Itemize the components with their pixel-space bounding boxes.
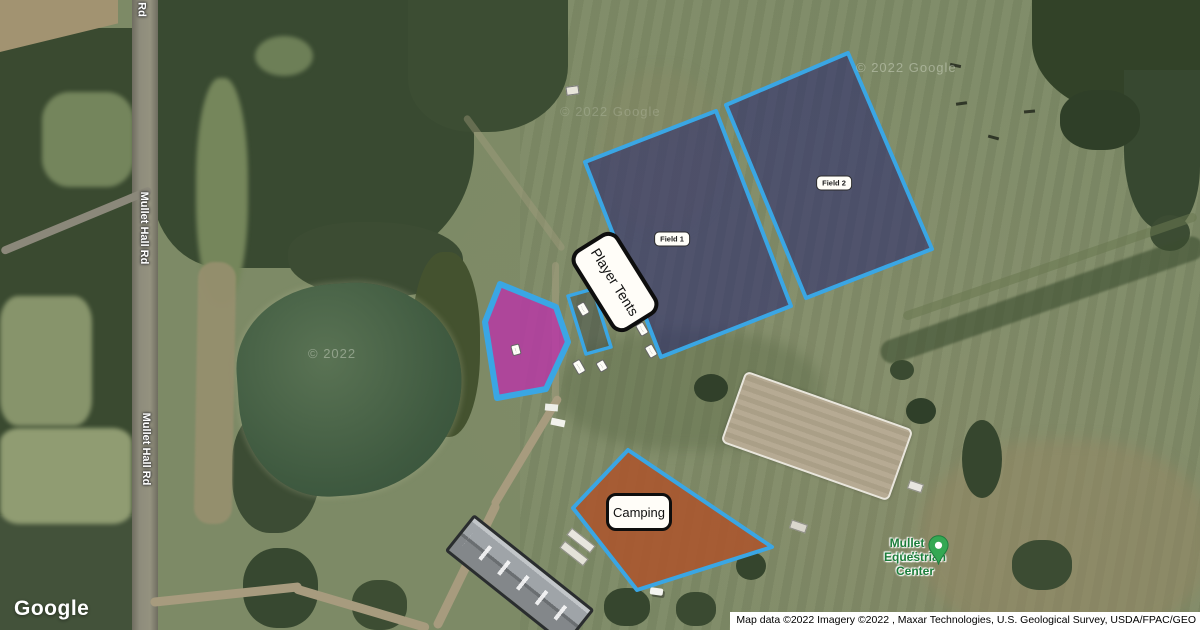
vendor-area-polygon[interactable] <box>485 284 568 398</box>
poi-marker-pin-icon[interactable] <box>928 535 949 565</box>
google-logo[interactable]: Google <box>14 597 89 621</box>
camping-polygon[interactable] <box>573 450 772 590</box>
field1-label-chip[interactable]: Field 1 <box>654 232 690 247</box>
camping-label[interactable]: Camping <box>606 493 672 531</box>
road-label-mullet-hall-rd: Mullet Hall Rd <box>138 406 152 492</box>
field2-label-chip[interactable]: Field 2 <box>816 176 852 191</box>
road-label-fragment: Rd <box>135 0 148 23</box>
road-label-mullet-hall-rd: Mullet Hall Rd <box>136 188 150 268</box>
satellite-map-canvas[interactable]: © 2022 © 2022 Google © 2022 Google Rd Mu… <box>0 0 1200 630</box>
map-attribution: Map data ©2022 Imagery ©2022 , Maxar Tec… <box>730 612 1200 630</box>
imagery-watermark: © 2022 <box>308 346 356 361</box>
imagery-watermark: © 2022 Google <box>560 104 661 119</box>
poi-label-mullet-hall-equestrian-center[interactable]: Mullet Hall Equestrian Center <box>838 536 930 550</box>
imagery-watermark: © 2022 Google <box>856 60 957 75</box>
